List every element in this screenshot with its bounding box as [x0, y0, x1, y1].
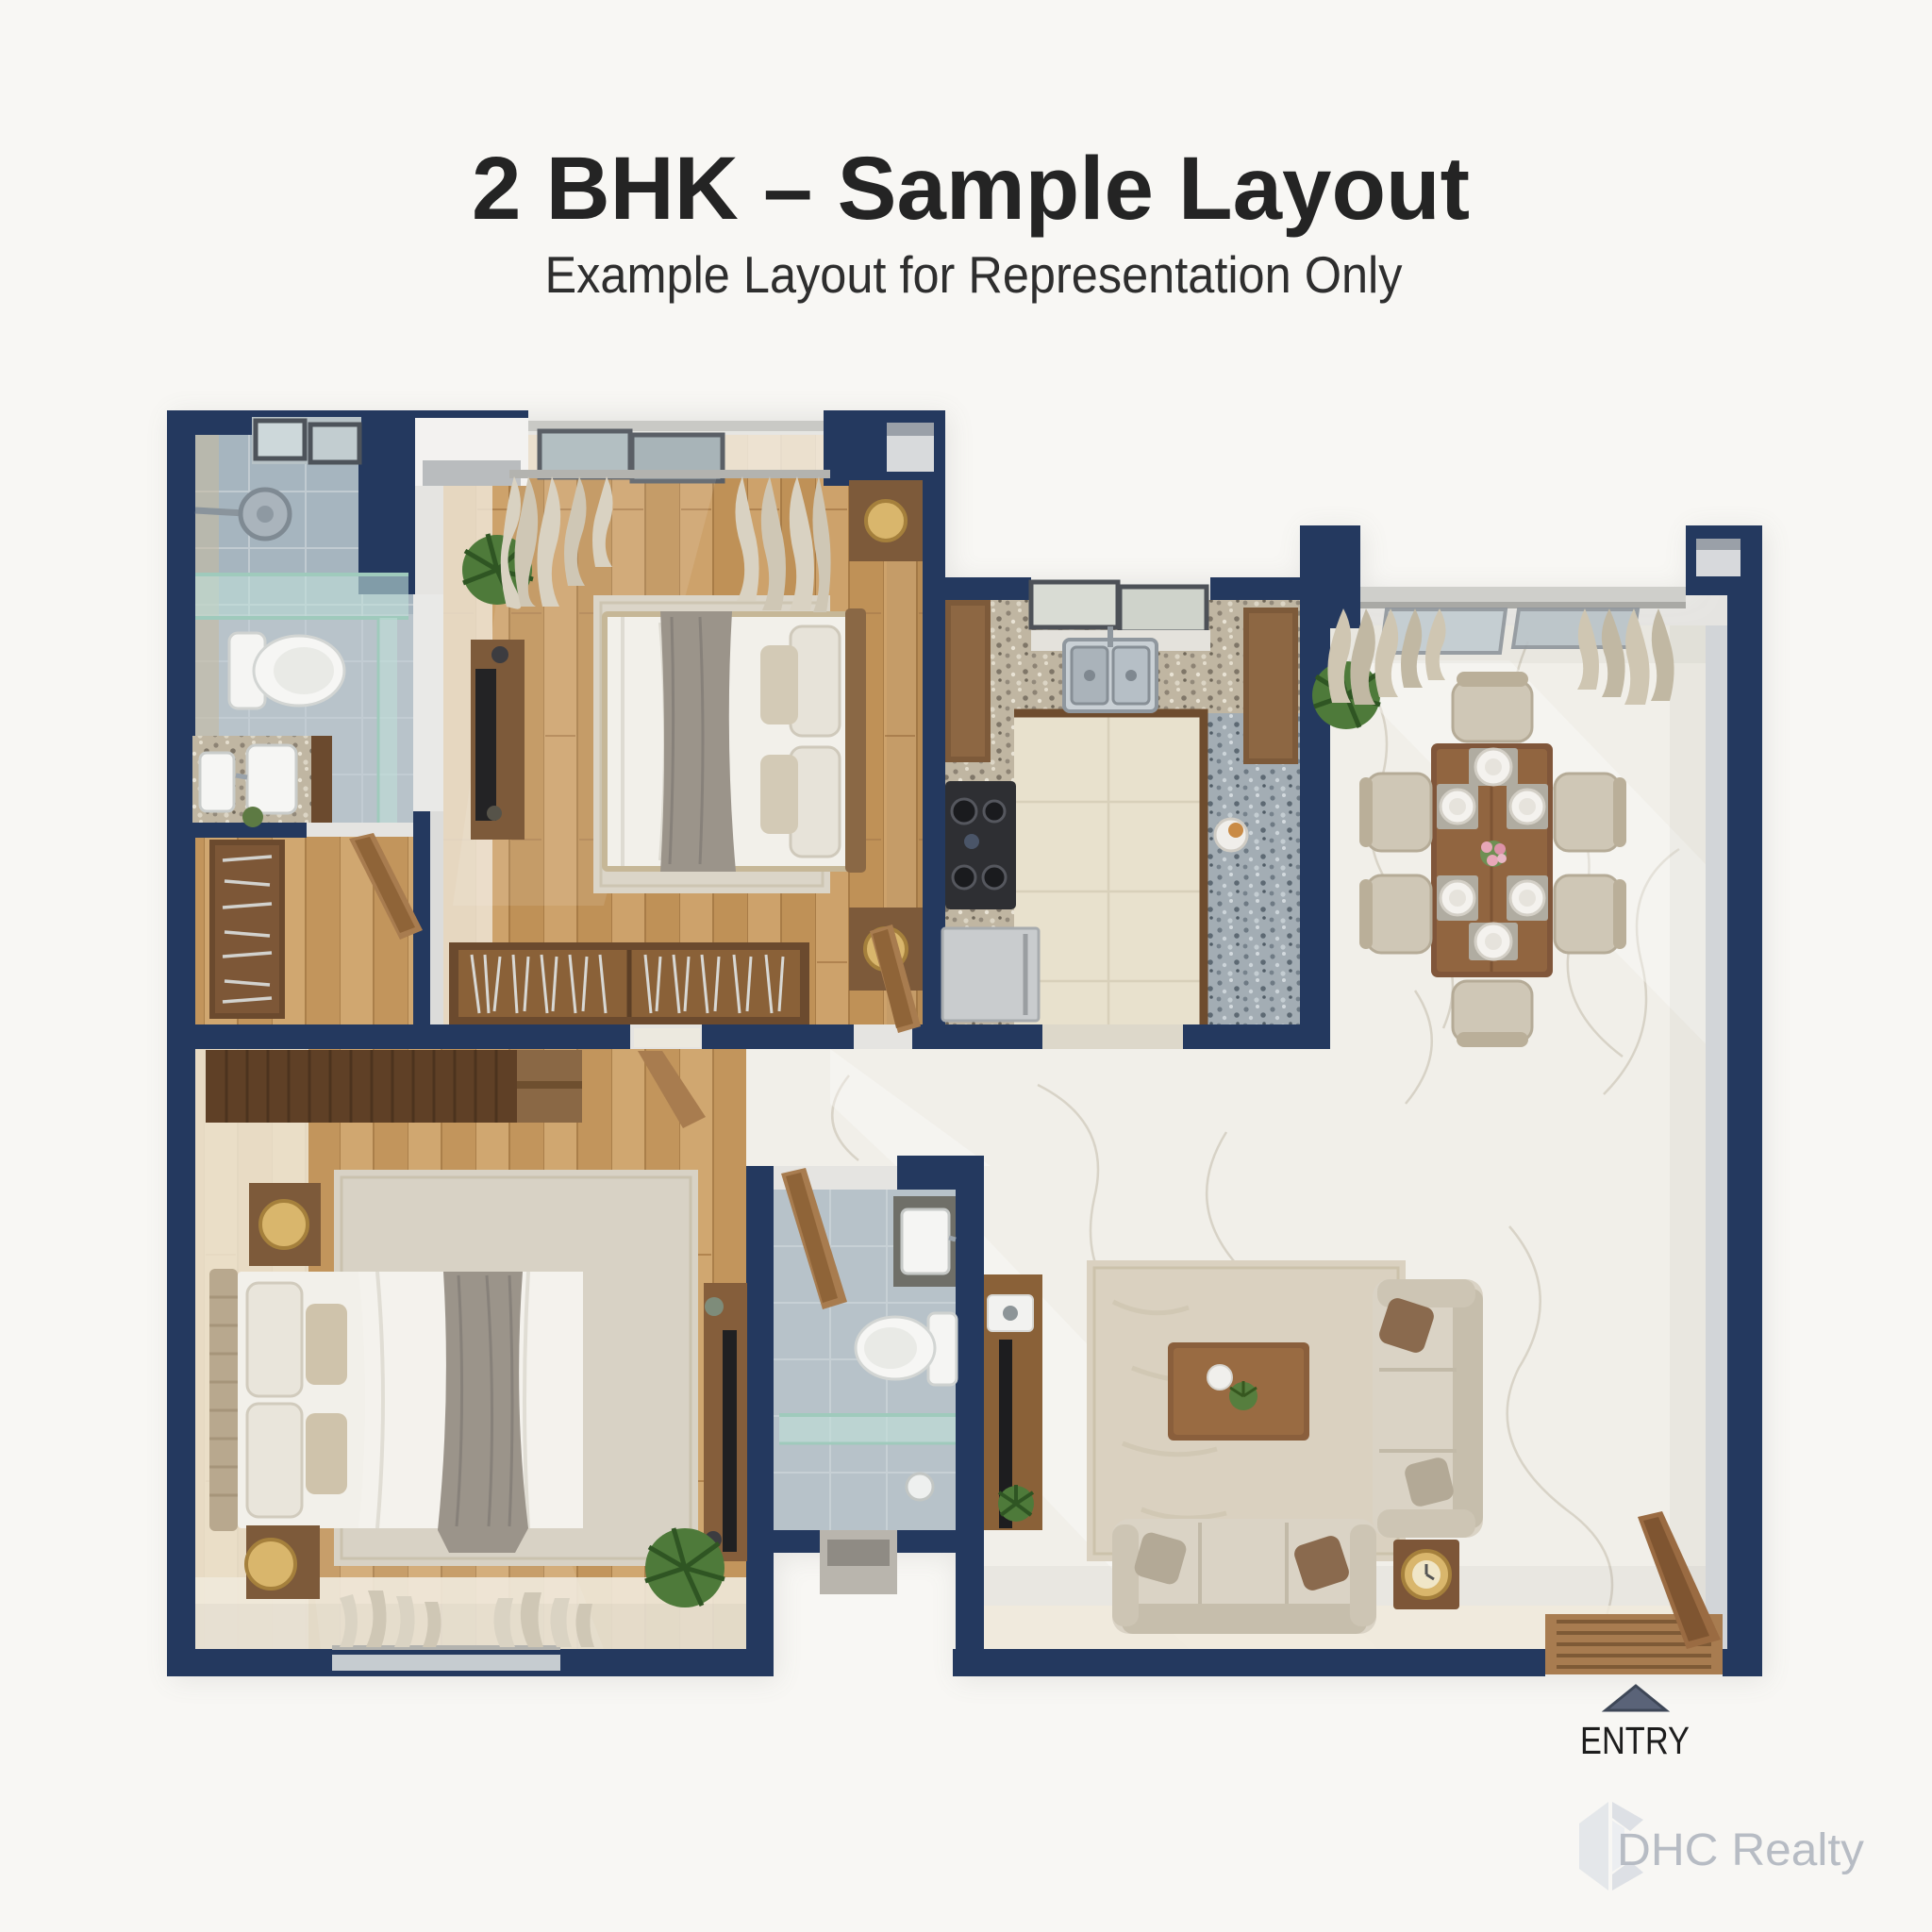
- svg-text:ENTRY: ENTRY: [1580, 1719, 1690, 1762]
- svg-text:DHC Realty: DHC Realty: [1617, 1825, 1864, 1875]
- svg-text:Example Layout for Representat: Example Layout for Representation Only: [545, 245, 1403, 304]
- svg-text:2 BHK – Sample Layout: 2 BHK – Sample Layout: [472, 139, 1470, 239]
